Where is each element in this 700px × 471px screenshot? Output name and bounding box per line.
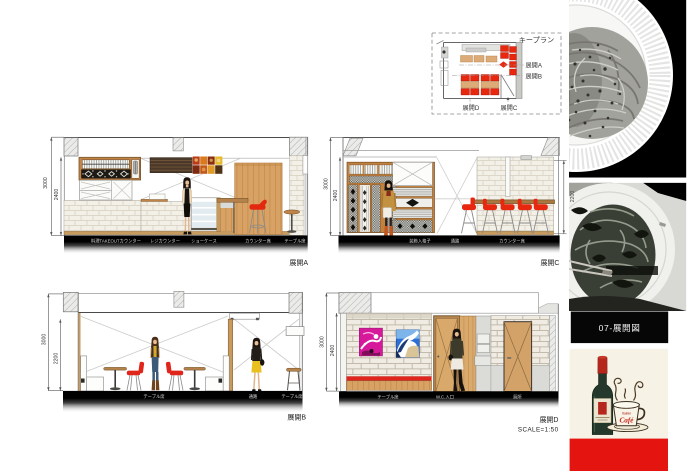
svg-text:テーブル席: テーブル席: [143, 393, 165, 400]
svg-text:SCALE=1:50: SCALE=1:50: [518, 427, 559, 434]
svg-text:通路: 通路: [451, 237, 460, 244]
svg-text:展開A: 展開A: [289, 259, 308, 267]
svg-text:テーブル席: テーブル席: [284, 237, 306, 244]
svg-text:2400: 2400: [333, 190, 339, 202]
svg-text:Italian: Italian: [622, 412, 632, 416]
svg-text:3000: 3000: [41, 334, 47, 346]
svg-text:3000: 3000: [43, 177, 49, 189]
svg-text:テーブル席: テーブル席: [377, 394, 399, 401]
svg-text:展開C: 展開C: [501, 105, 518, 112]
svg-text:レジカウンター: レジカウンター: [150, 237, 180, 244]
svg-text:キープラン: キープラン: [519, 36, 555, 45]
svg-text:2400: 2400: [330, 345, 336, 357]
svg-text:2200: 2200: [54, 353, 60, 365]
svg-text:07-展開図: 07-展開図: [599, 323, 641, 333]
svg-text:テーブル席: テーブル席: [281, 393, 303, 400]
svg-text:3000: 3000: [324, 178, 330, 190]
svg-text:展開D: 展開D: [463, 105, 480, 112]
svg-text:W.C.入口: W.C.入口: [436, 395, 454, 400]
svg-text:Café: Café: [620, 416, 635, 424]
svg-text:装飾入格子: 装飾入格子: [409, 237, 431, 244]
svg-text:2400: 2400: [54, 189, 60, 201]
svg-text:厠所: 厠所: [513, 394, 522, 401]
svg-text:展開D: 展開D: [539, 416, 558, 424]
svg-text:ショーケース: ショーケース: [191, 237, 217, 244]
svg-text:通路: 通路: [249, 393, 258, 400]
svg-text:展開C: 展開C: [540, 259, 559, 267]
svg-text:展開B: 展開B: [526, 73, 543, 80]
svg-text:展開B: 展開B: [287, 414, 306, 422]
svg-text:料理TAKEOUTカウンター: 料理TAKEOUTカウンター: [91, 237, 141, 244]
svg-text:2200: 2200: [570, 191, 576, 203]
svg-text:3000: 3000: [319, 336, 325, 348]
svg-text:カウンター席: カウンター席: [499, 237, 525, 244]
svg-text:カウンター席: カウンター席: [245, 237, 271, 244]
svg-text:展開A: 展開A: [526, 63, 543, 70]
